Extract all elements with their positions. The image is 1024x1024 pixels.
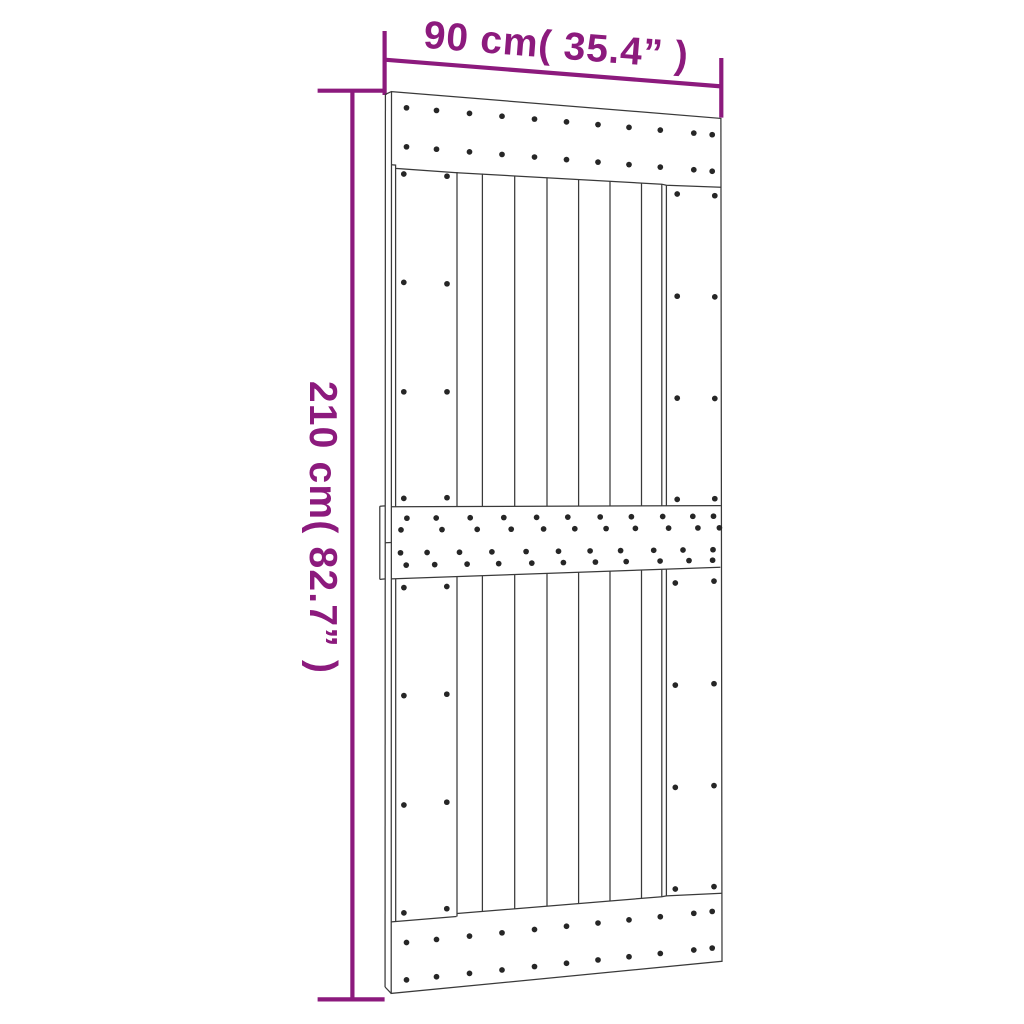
svg-text:210 cm( 82.7” ): 210 cm( 82.7” ) — [301, 381, 344, 674]
svg-text:90 cm( 35.4” ): 90 cm( 35.4” ) — [422, 14, 690, 78]
